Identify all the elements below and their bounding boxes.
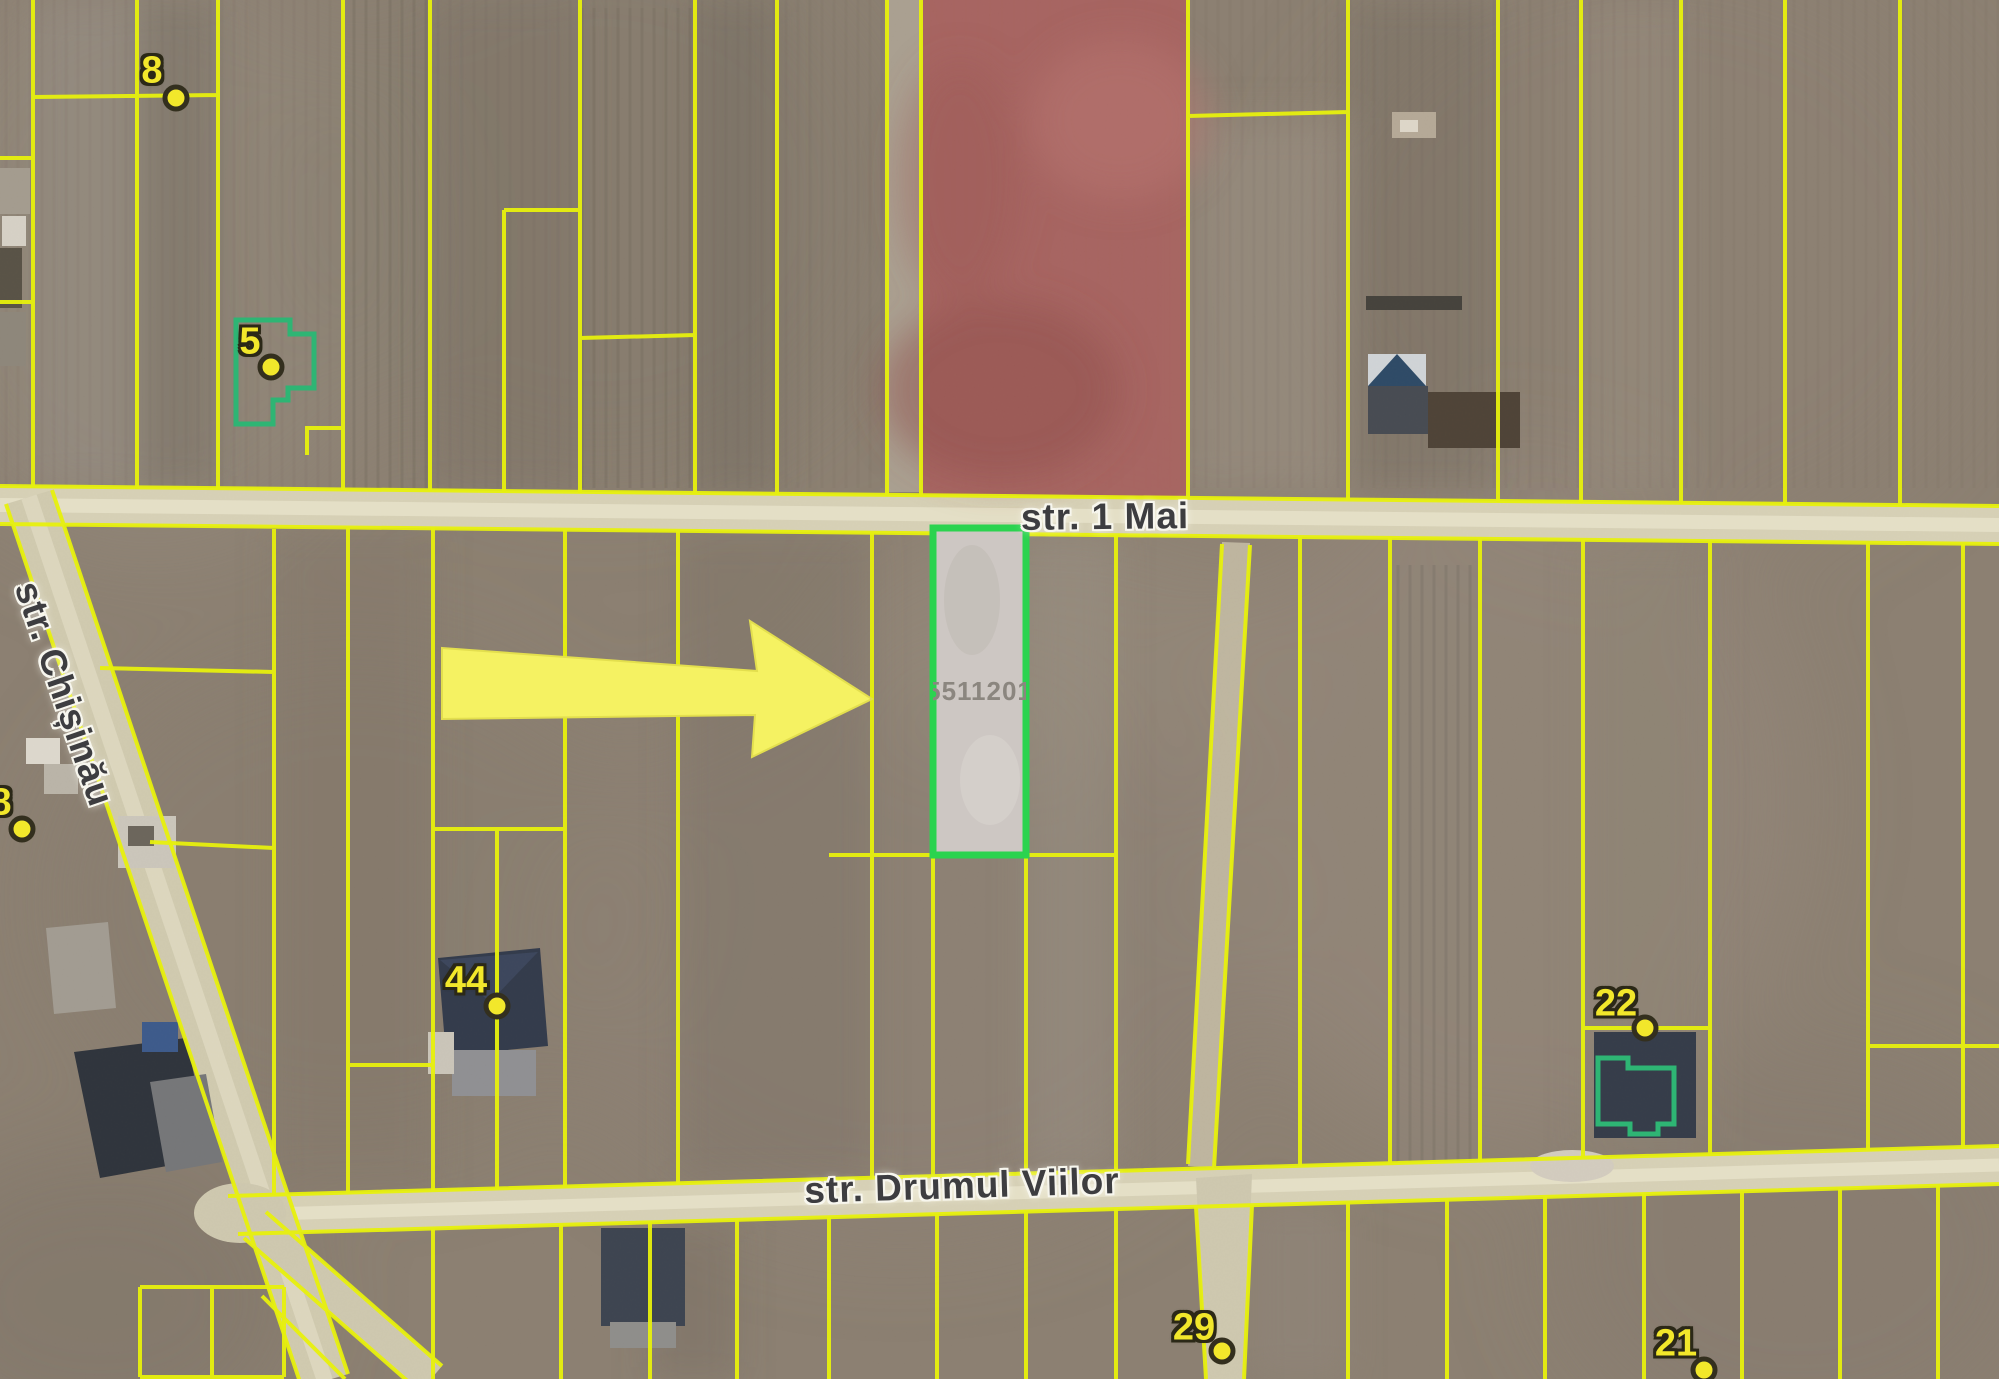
marker-dot-5[interactable] <box>258 354 285 381</box>
satellite-cadastral-map[interactable]: str. 1 Mai str. Chișinău str. Drumul Vii… <box>0 0 1999 1379</box>
marker-dot-44[interactable] <box>484 993 511 1020</box>
marker-dot-8-left[interactable] <box>9 816 36 843</box>
target-parcel-highlight[interactable] <box>933 528 1026 855</box>
map-graphics <box>0 0 1999 1379</box>
marker-dot-8-top[interactable] <box>163 85 190 112</box>
marker-dot-21[interactable] <box>1691 1357 1718 1379</box>
parcel-marker-8-top: 8 <box>141 50 162 93</box>
parcel-marker-8-left: 8 <box>0 782 12 825</box>
parcel-marker-29: 29 <box>1173 1307 1215 1350</box>
marker-dot-22[interactable] <box>1632 1015 1659 1042</box>
parcel-marker-22: 22 <box>1595 983 1637 1026</box>
marker-dot-29[interactable] <box>1209 1338 1236 1365</box>
parcel-marker-44: 44 <box>445 960 487 1003</box>
parcel-marker-5: 5 <box>239 321 260 364</box>
parcel-marker-21: 21 <box>1655 1323 1697 1366</box>
